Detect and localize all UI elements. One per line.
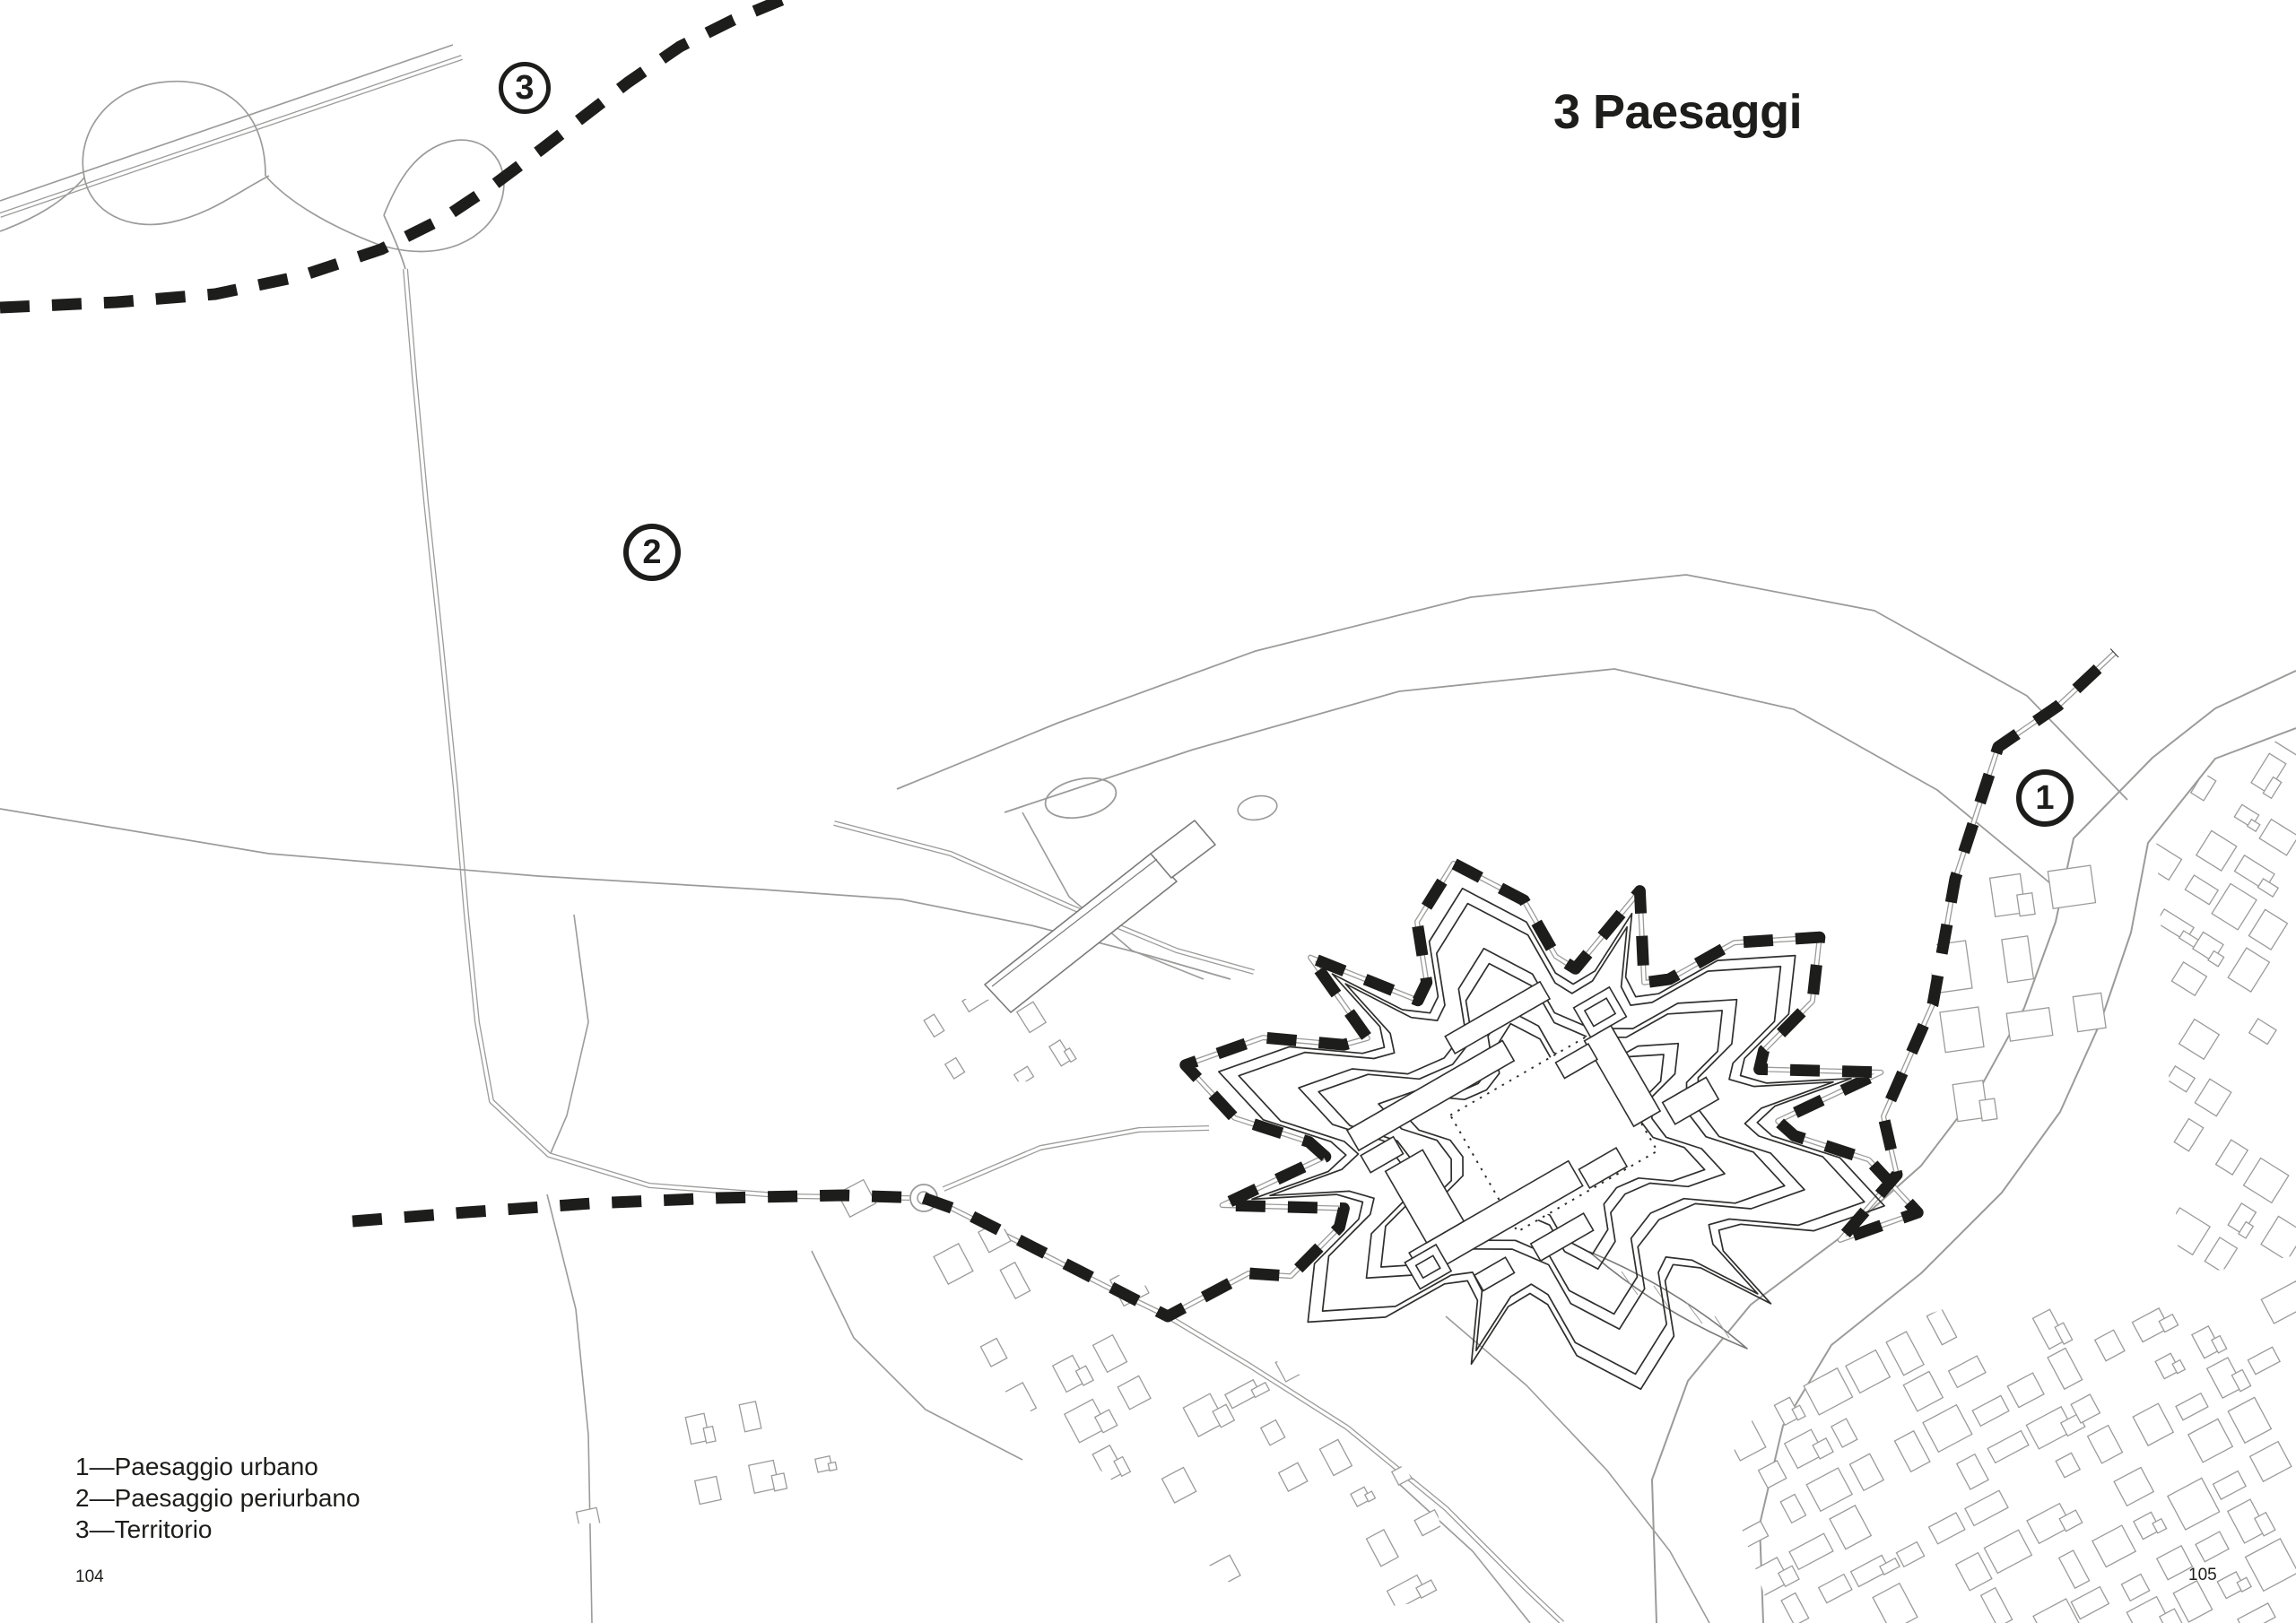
page-number-left: 104 <box>75 1567 104 1587</box>
legend-item-periurbano: 2—Paesaggio periurbano <box>75 1482 361 1514</box>
marker-2-number: 2 <box>642 535 661 569</box>
page-number-right: 105 <box>2188 1566 2217 1585</box>
book-spread: 3 Paesaggi 1—Paesaggio urbano 2—Paesaggi… <box>0 0 2296 1623</box>
marker-1-number: 1 <box>2035 781 2054 815</box>
legend-item-urbano: 1—Paesaggio urbano <box>75 1451 361 1482</box>
legend-item-territorio: 3—Territorio <box>75 1514 361 1545</box>
map-drawing <box>0 0 2296 1623</box>
marker-3-number: 3 <box>515 71 534 105</box>
marker-paesaggio-periurbano: 2 <box>623 524 681 581</box>
marker-paesaggio-urbano: 1 <box>2016 769 2074 827</box>
legend: 1—Paesaggio urbano 2—Paesaggio periurban… <box>75 1451 361 1545</box>
marker-territorio: 3 <box>499 62 551 114</box>
page-title: 3 Paesaggi <box>1553 84 1802 140</box>
